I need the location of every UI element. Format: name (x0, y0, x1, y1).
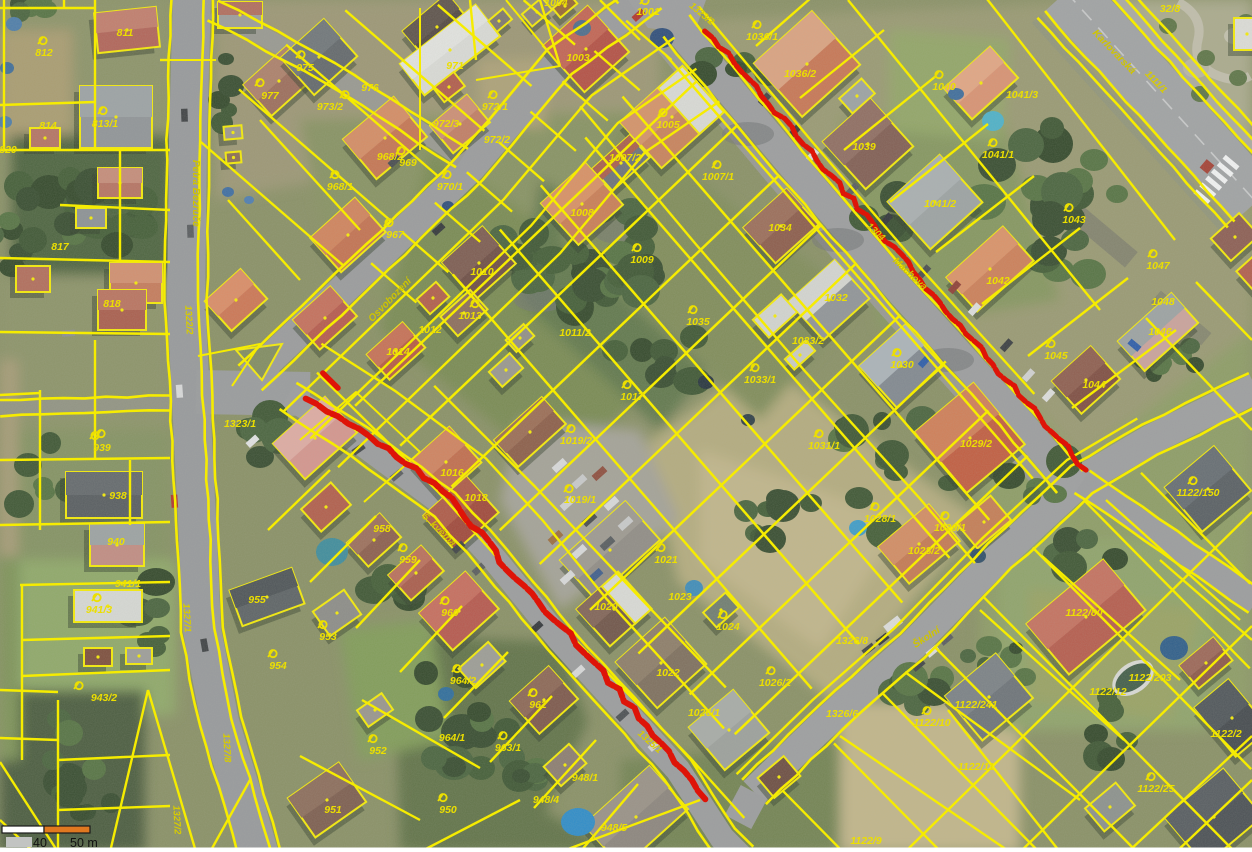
svg-text:948/5: 948/5 (601, 822, 627, 834)
svg-text:1005: 1005 (656, 119, 680, 131)
svg-text:1032: 1032 (824, 292, 848, 304)
svg-text:1045: 1045 (1044, 350, 1068, 362)
svg-text:1022: 1022 (656, 667, 680, 679)
svg-text:1035: 1035 (686, 316, 710, 328)
svg-text:950: 950 (439, 804, 457, 816)
svg-text:1007/1: 1007/1 (702, 171, 734, 183)
svg-text:968/1: 968/1 (327, 181, 353, 193)
svg-text:975: 975 (296, 62, 314, 74)
svg-text:970/1: 970/1 (437, 181, 463, 193)
svg-text:1122/9: 1122/9 (850, 835, 881, 847)
svg-text:1326/6: 1326/6 (826, 708, 858, 720)
svg-text:941/1: 941/1 (115, 578, 141, 590)
svg-text:951: 951 (324, 804, 342, 816)
svg-text:939: 939 (93, 442, 111, 454)
svg-text:972/3: 972/3 (433, 118, 459, 130)
svg-text:1122/203: 1122/203 (1128, 672, 1171, 684)
svg-text:820: 820 (0, 144, 17, 156)
svg-text:818: 818 (103, 298, 121, 310)
svg-text:1008: 1008 (570, 207, 594, 219)
svg-text:1036/1: 1036/1 (746, 31, 778, 43)
svg-text:1029/1: 1029/1 (934, 522, 966, 534)
svg-text:1041/3: 1041/3 (1006, 89, 1038, 101)
svg-text:1122/241: 1122/241 (954, 699, 997, 711)
svg-text:960: 960 (441, 607, 459, 619)
svg-text:954: 954 (269, 660, 287, 672)
svg-text:1327/1: 1327/1 (180, 603, 193, 633)
svg-text:1326/8: 1326/8 (836, 635, 868, 647)
svg-text:1047: 1047 (1146, 260, 1171, 272)
svg-text:958: 958 (373, 523, 391, 535)
svg-text:1122/25: 1122/25 (1137, 783, 1174, 795)
svg-text:1003: 1003 (566, 52, 590, 64)
svg-text:Petra Bezruče: Petra Bezruče (190, 160, 201, 227)
svg-text:1018: 1018 (464, 492, 488, 504)
svg-text:1028/1: 1028/1 (864, 513, 896, 525)
svg-text:1029/2: 1029/2 (960, 438, 992, 450)
svg-text:1026/1: 1026/1 (688, 707, 720, 719)
svg-text:1041/1: 1041/1 (982, 149, 1014, 161)
svg-text:1039: 1039 (852, 141, 876, 153)
svg-text:1017: 1017 (620, 391, 645, 403)
svg-text:1010: 1010 (470, 266, 494, 278)
svg-text:1044: 1044 (1082, 379, 1106, 391)
svg-text:1028/2: 1028/2 (908, 545, 940, 557)
svg-text:1122/11: 1122/11 (958, 761, 995, 773)
svg-text:1026/2: 1026/2 (759, 677, 791, 689)
svg-text:973/2: 973/2 (317, 101, 343, 113)
svg-text:967: 967 (386, 229, 405, 241)
svg-text:1033/1: 1033/1 (744, 374, 776, 386)
svg-text:1020: 1020 (594, 601, 618, 613)
svg-text:1041/2: 1041/2 (924, 198, 956, 210)
svg-text:817: 817 (51, 241, 70, 253)
svg-text:943/2: 943/2 (91, 692, 117, 704)
svg-text:1048: 1048 (1151, 296, 1175, 308)
svg-text:972/1: 972/1 (482, 101, 508, 113)
svg-text:976: 976 (361, 82, 379, 94)
svg-text:1004: 1004 (544, 0, 568, 9)
svg-text:1007/2: 1007/2 (609, 152, 641, 164)
svg-text:1322/2: 1322/2 (182, 305, 195, 335)
svg-text:952: 952 (369, 745, 387, 757)
svg-text:1046: 1046 (1148, 326, 1172, 338)
svg-text:1016: 1016 (440, 467, 464, 479)
svg-text:1019/2: 1019/2 (560, 435, 592, 447)
svg-text:1013: 1013 (458, 310, 482, 322)
svg-text:1122/12: 1122/12 (1089, 686, 1126, 698)
svg-text:971: 971 (446, 60, 464, 72)
svg-text:1014: 1014 (386, 346, 410, 358)
svg-text:1009: 1009 (630, 254, 654, 266)
svg-text:938: 938 (109, 490, 127, 502)
svg-text:977: 977 (261, 90, 280, 102)
svg-text:1011/2: 1011/2 (559, 327, 590, 339)
svg-text:1023: 1023 (668, 591, 692, 603)
svg-text:940: 940 (107, 536, 125, 548)
svg-text:1040: 1040 (932, 81, 956, 93)
svg-text:972/2: 972/2 (484, 134, 510, 146)
svg-text:1122/150: 1122/150 (1176, 487, 1219, 499)
svg-text:1327/2: 1327/2 (170, 805, 183, 835)
svg-text:1012: 1012 (418, 324, 442, 336)
svg-text:814: 814 (39, 120, 57, 132)
svg-text:964/2: 964/2 (450, 675, 476, 687)
svg-text:1033/2: 1033/2 (792, 335, 824, 347)
svg-text:1024: 1024 (716, 621, 740, 633)
svg-text:32/8: 32/8 (1160, 3, 1181, 15)
svg-text:813/1: 813/1 (92, 118, 118, 130)
svg-text:1042: 1042 (986, 275, 1010, 287)
svg-text:812: 812 (35, 47, 53, 59)
svg-text:1122/10: 1122/10 (913, 717, 950, 729)
svg-text:1034: 1034 (768, 222, 792, 234)
svg-text:941/3: 941/3 (86, 604, 112, 616)
svg-text:1021: 1021 (654, 554, 678, 566)
svg-text:948/4: 948/4 (533, 794, 559, 806)
svg-text:1036/2: 1036/2 (784, 68, 816, 80)
svg-text:1001: 1001 (636, 6, 660, 18)
svg-text:1030: 1030 (890, 359, 914, 371)
svg-text:962: 962 (529, 699, 547, 711)
svg-text:1019/1: 1019/1 (564, 494, 596, 506)
svg-text:1327/8: 1327/8 (220, 733, 233, 763)
svg-text:953: 953 (319, 631, 337, 643)
svg-text:1043: 1043 (1062, 214, 1086, 226)
svg-text:948/1: 948/1 (572, 772, 598, 784)
svg-text:963/1: 963/1 (495, 742, 521, 754)
svg-text:1031/1: 1031/1 (808, 440, 840, 452)
svg-text:955: 955 (248, 594, 266, 606)
svg-text:811: 811 (117, 27, 134, 39)
svg-text:1122/80: 1122/80 (1065, 607, 1102, 619)
svg-text:959: 959 (399, 554, 417, 566)
svg-text:1122/2: 1122/2 (1210, 728, 1241, 740)
svg-text:964/1: 964/1 (439, 732, 465, 744)
svg-text:1323/1: 1323/1 (224, 418, 256, 430)
